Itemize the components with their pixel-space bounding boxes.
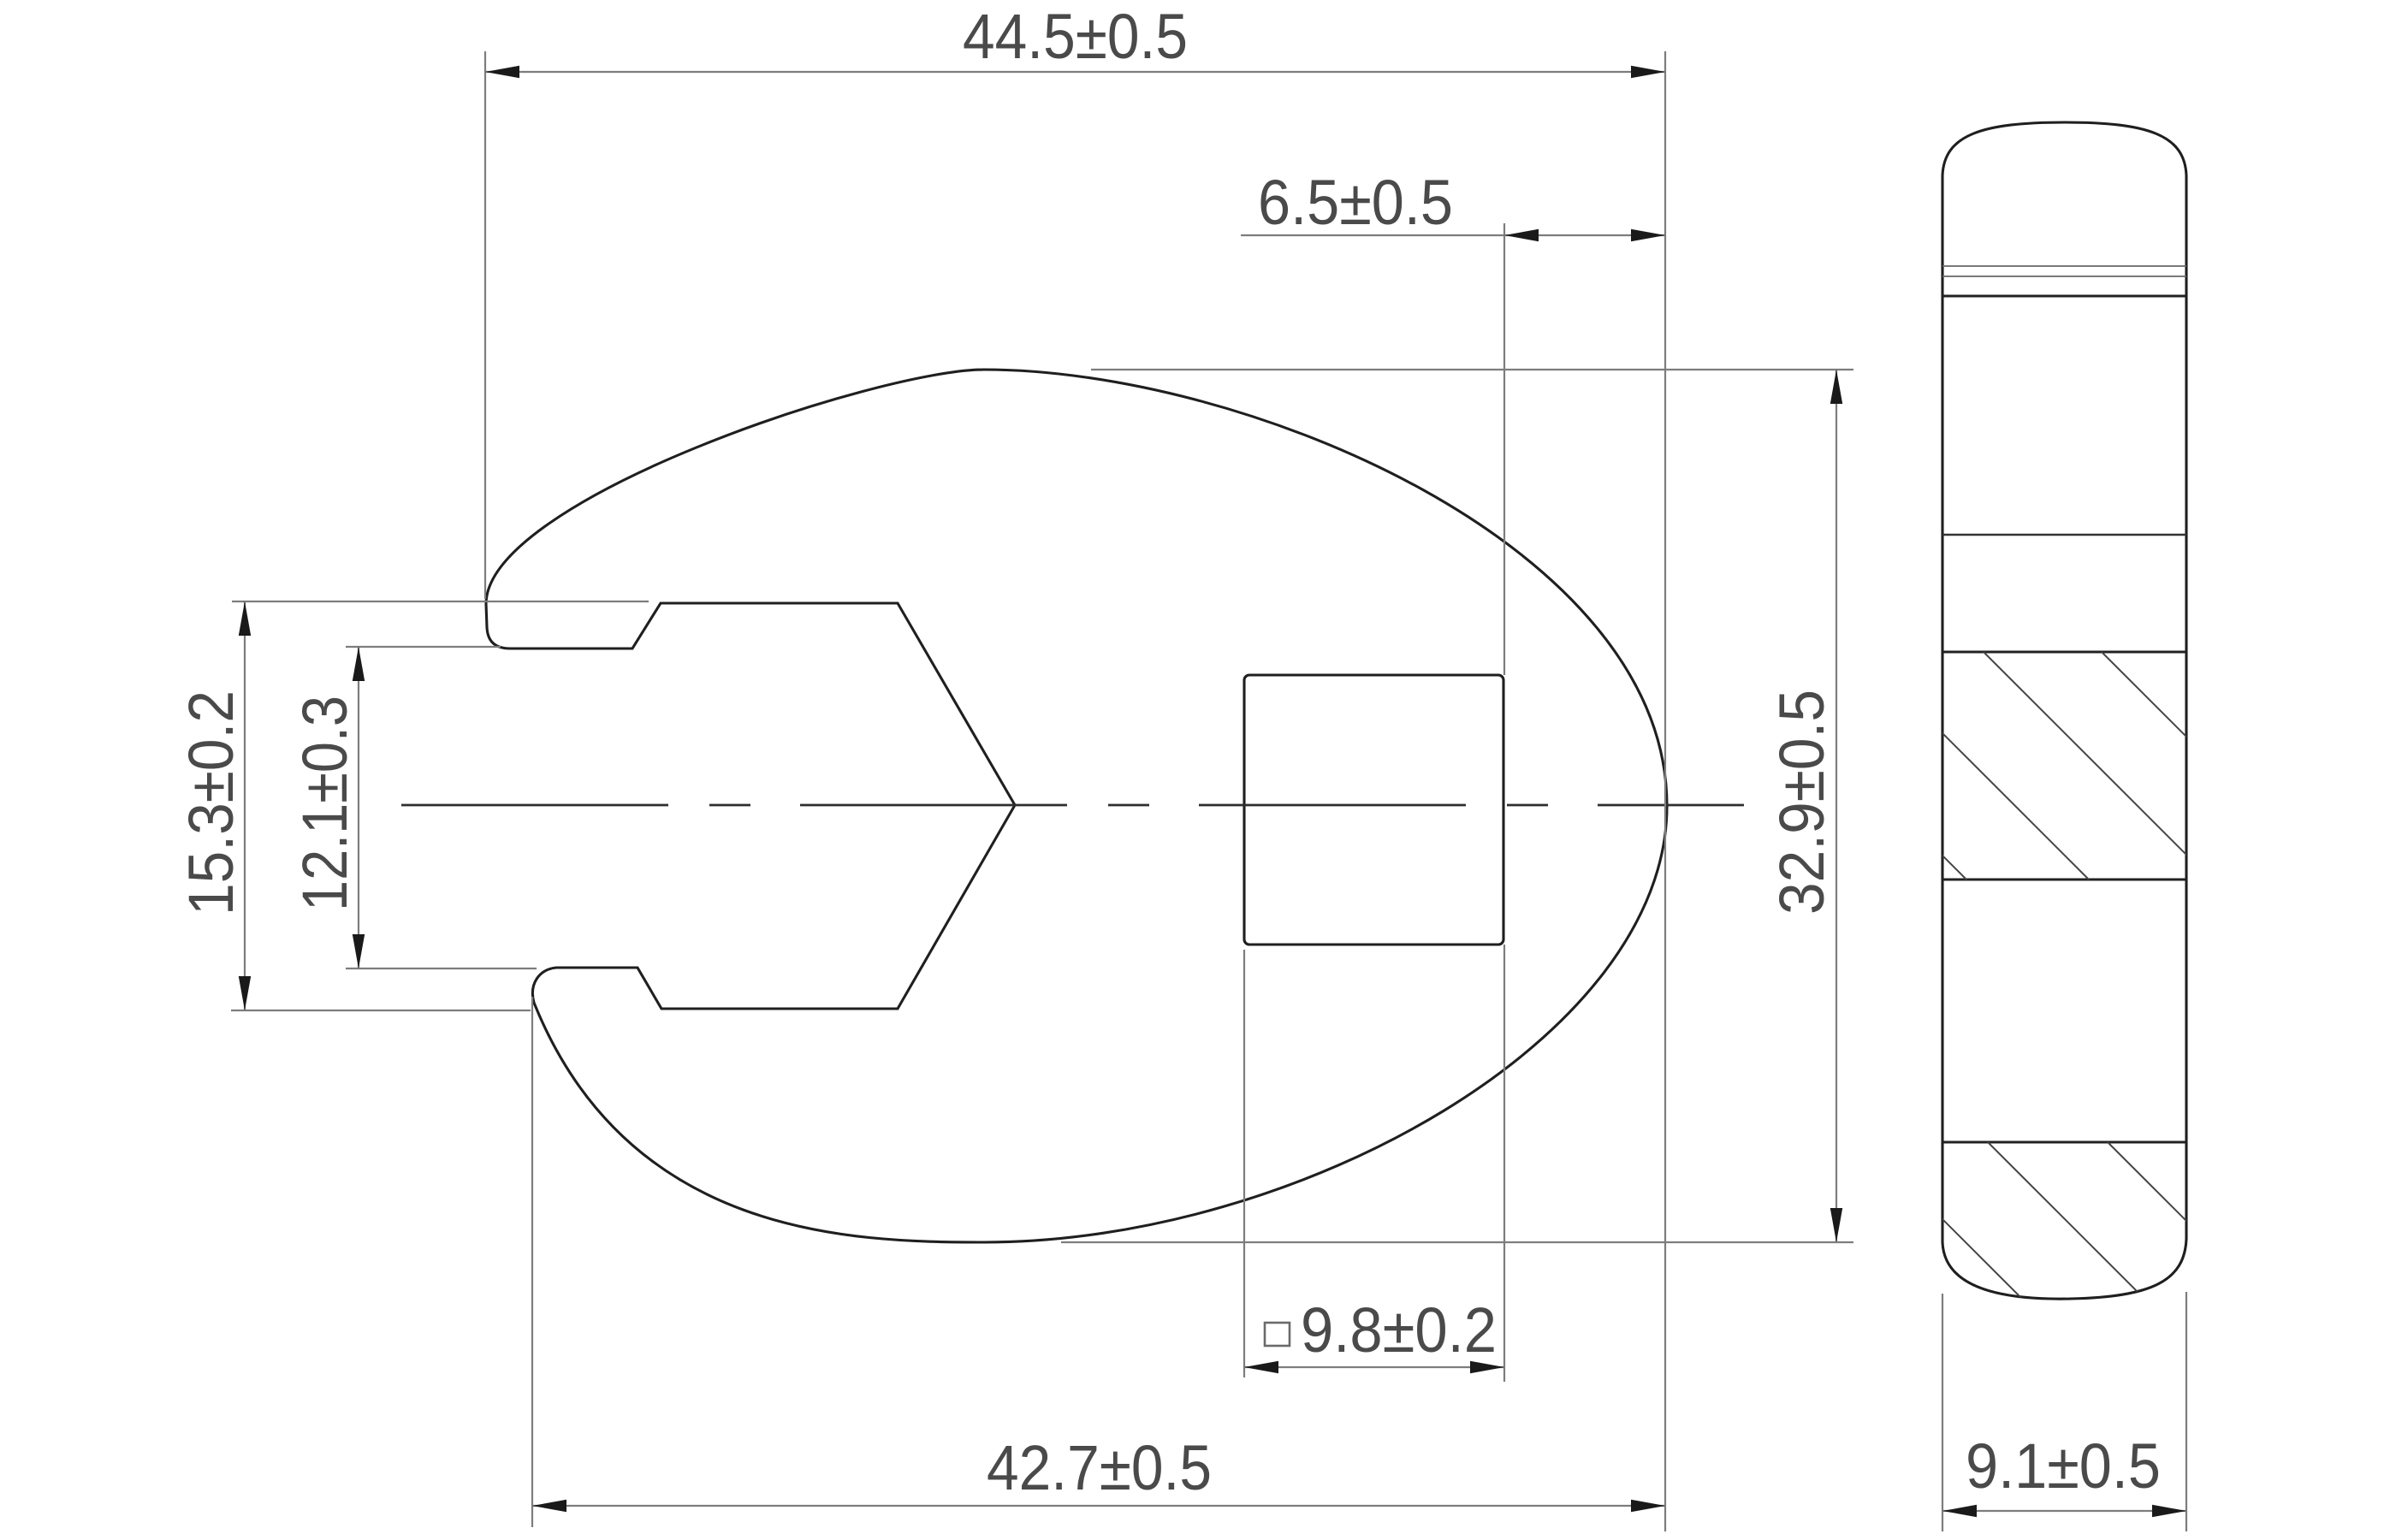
svg-text:12.1±0.3: 12.1±0.3 bbox=[289, 696, 360, 911]
svg-text:9.8±0.2: 9.8±0.2 bbox=[1301, 1294, 1497, 1365]
svg-text:6.5±0.5: 6.5±0.5 bbox=[1258, 167, 1453, 238]
svg-text:44.5±0.5: 44.5±0.5 bbox=[963, 1, 1188, 72]
svg-text:15.3±0.2: 15.3±0.2 bbox=[175, 690, 246, 915]
svg-text:32.9±0.5: 32.9±0.5 bbox=[1766, 690, 1837, 915]
svg-text:9.1±0.5: 9.1±0.5 bbox=[1966, 1430, 2161, 1501]
svg-text:42.7±0.5: 42.7±0.5 bbox=[987, 1432, 1212, 1503]
